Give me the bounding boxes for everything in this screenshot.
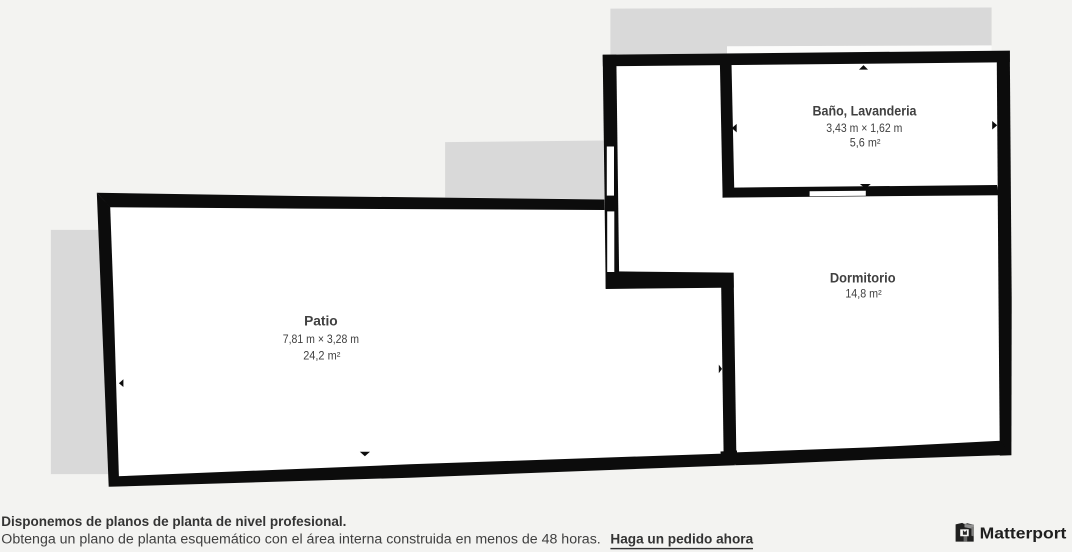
svg-text:Matterport: Matterport (980, 526, 1067, 543)
svg-text:Disponemos de planos de planta: Disponemos de planos de planta de nivel … (1, 514, 346, 529)
svg-text:Patio: Patio (304, 313, 338, 328)
svg-text:3,43 m × 1,62 m: 3,43 m × 1,62 m (826, 123, 902, 135)
svg-text:Baño, Lavanderia: Baño, Lavanderia (813, 103, 917, 118)
svg-text:7,81 m × 3,28 m: 7,81 m × 3,28 m (283, 334, 359, 346)
svg-text:Obtenga un plano de planta esq: Obtenga un plano de planta esquemático c… (1, 532, 600, 548)
svg-text:24,2 m²: 24,2 m² (303, 351, 340, 363)
svg-text:Haga un pedido ahora: Haga un pedido ahora (610, 532, 753, 547)
svg-text:5,6 m²: 5,6 m² (850, 137, 881, 149)
svg-text:14,8 m²: 14,8 m² (845, 289, 881, 301)
svg-text:Dormitorio: Dormitorio (830, 270, 896, 285)
